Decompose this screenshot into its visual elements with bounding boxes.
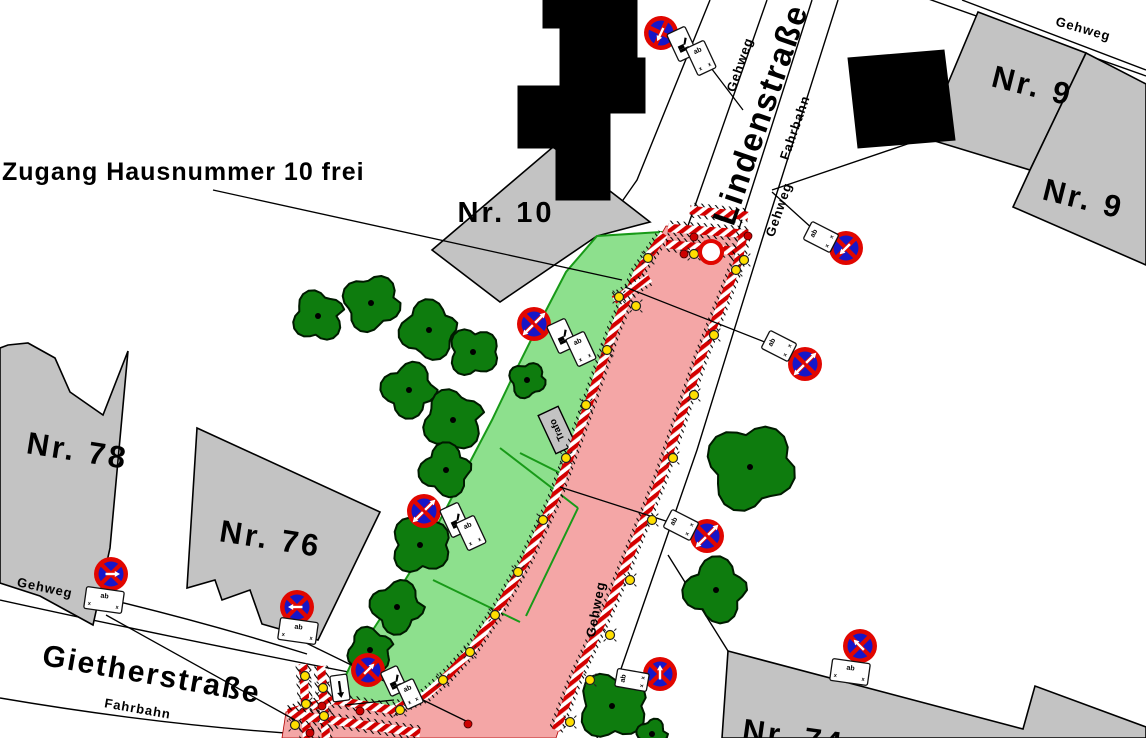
dates-plate: abxx [278,617,319,644]
warning-lamp [489,609,502,622]
dates-plate: abxx [830,658,871,685]
tree-trunk-dot [443,467,449,473]
lamp-bulb [632,302,641,311]
no-stopping-sign [94,557,128,591]
lamp-bulb [690,391,699,400]
lamp-ray [634,574,636,576]
warning-lamp [730,264,743,277]
tree-trunk-dot [524,377,530,383]
tree-trunk-dot [713,587,719,593]
traffic-plan-canvas: Trafo abxxabxxabxxabxxabxxabxxabxxabxxab… [0,0,1146,738]
parcel-label-nr10: Nr. 10 [458,197,555,229]
red-dot-marker [744,232,752,240]
warning-lamp [584,674,597,687]
lamp-bulb [396,706,405,715]
red-dot-marker [318,702,326,710]
warning-lamp [604,629,617,642]
lamp-bulb [586,676,595,685]
building-black-topright [848,50,955,148]
warning-lamp [564,716,577,729]
lamp-ray [604,639,606,641]
lamp-bulb [690,250,699,259]
lamp-bulb [710,331,719,340]
lamp-ray [748,254,750,256]
red-dot-marker [680,250,688,258]
lamp-ray [748,264,750,266]
lamp-ray [718,339,720,341]
lamp-bulb [566,718,575,727]
no-stopping-sign [351,653,385,687]
tree-trunk-dot [426,327,432,333]
tree-trunk-dot [470,349,476,355]
warning-lamp [738,254,751,267]
warning-lamp [624,574,637,587]
lamp-bulb [740,256,749,265]
lamp-ray [614,629,616,631]
lamp-ray [698,399,700,401]
lamp-ray [698,389,700,391]
lamp-bulb [302,700,311,709]
lamp-ray [656,524,658,526]
red-ring-marker [700,241,722,263]
warning-lamp [580,399,593,412]
lamp-bulb [648,516,657,525]
plate-text: ab [294,623,303,631]
warning-lamp [688,389,701,402]
lamp-ray [574,726,576,728]
tree-trunk-dot [609,703,615,709]
red-dot-marker [464,720,472,728]
lamp-ray [614,639,616,641]
plate-text: ab [100,592,109,600]
warning-lamp [560,452,573,465]
tree-trunk-dot [450,417,456,423]
warning-lamp [437,674,450,687]
site-plan-map: Trafo abxxabxxabxxabxxabxxabxxabxxabxxab… [0,0,1146,738]
lamp-ray [677,462,679,464]
street-label-gehweg-topright: Gehweg [1054,14,1113,44]
warning-lamp [642,252,655,265]
tree-trunk-dot [649,731,655,737]
annotation-zugang: Zugang Hausnummer 10 frei [2,158,365,186]
plate-text: ab [619,674,627,683]
lamp-bulb [320,712,329,721]
lamp-bulb [603,346,612,355]
warning-lamp [601,344,614,357]
lamp-bulb [562,454,571,463]
no-stopping-sign [843,629,877,663]
dates-plate: abxx [84,586,125,613]
warning-lamp [646,514,659,527]
tree-trunk-dot [394,604,400,610]
warning-lamp [289,719,302,732]
lamp-bulb [644,254,653,263]
warning-lamp [667,452,680,465]
street-label-gietherstrasse: Gietherstraße [40,639,263,710]
lamp-bulb [582,401,591,410]
red-dot-marker [306,729,314,737]
warning-lamp [464,646,477,659]
lamp-ray [634,584,636,586]
tree-trunk-dot [417,542,423,548]
lamp-bulb [626,576,635,585]
warning-lamp [512,566,525,579]
lamp-bulb [439,676,448,685]
lamp-ray [574,716,576,718]
lamp-bulb [466,648,475,657]
warning-lamp [299,670,312,683]
lamp-ray [656,514,658,516]
street-label-gehweg-east: Gehweg [762,180,795,238]
lamp-bulb [732,266,741,275]
warning-lamp [317,682,330,695]
warning-lamp [630,300,643,313]
lamp-bulb [301,672,310,681]
lamp-bulb [514,568,523,577]
arrow-down-sign [330,674,350,702]
tree-trunk-dot [747,464,753,470]
lamp-bulb [491,611,500,620]
lamp-bulb [291,721,300,730]
warning-lamp [613,291,626,304]
tree-trunk-dot [406,387,412,393]
no-stopping-sign [407,494,441,528]
lamp-bulb [669,454,678,463]
warning-lamp [300,698,313,711]
lamp-bulb [539,516,548,525]
no-stopping-sign [517,307,551,341]
tree-trunk-dot [367,647,373,653]
warning-lamp [318,710,331,723]
tree-trunk-dot [368,300,374,306]
lamp-bulb [606,631,615,640]
warning-lamp [537,514,550,527]
red-dot-marker [690,233,698,241]
lamp-bulb [319,684,328,693]
lamp-ray [677,452,679,454]
lamp-bulb [615,293,624,302]
warning-lamp [708,329,721,342]
red-dot-marker [356,707,364,715]
tree-trunk-dot [315,313,321,319]
plate-text: ab [846,664,855,672]
warning-lamp [394,704,407,717]
